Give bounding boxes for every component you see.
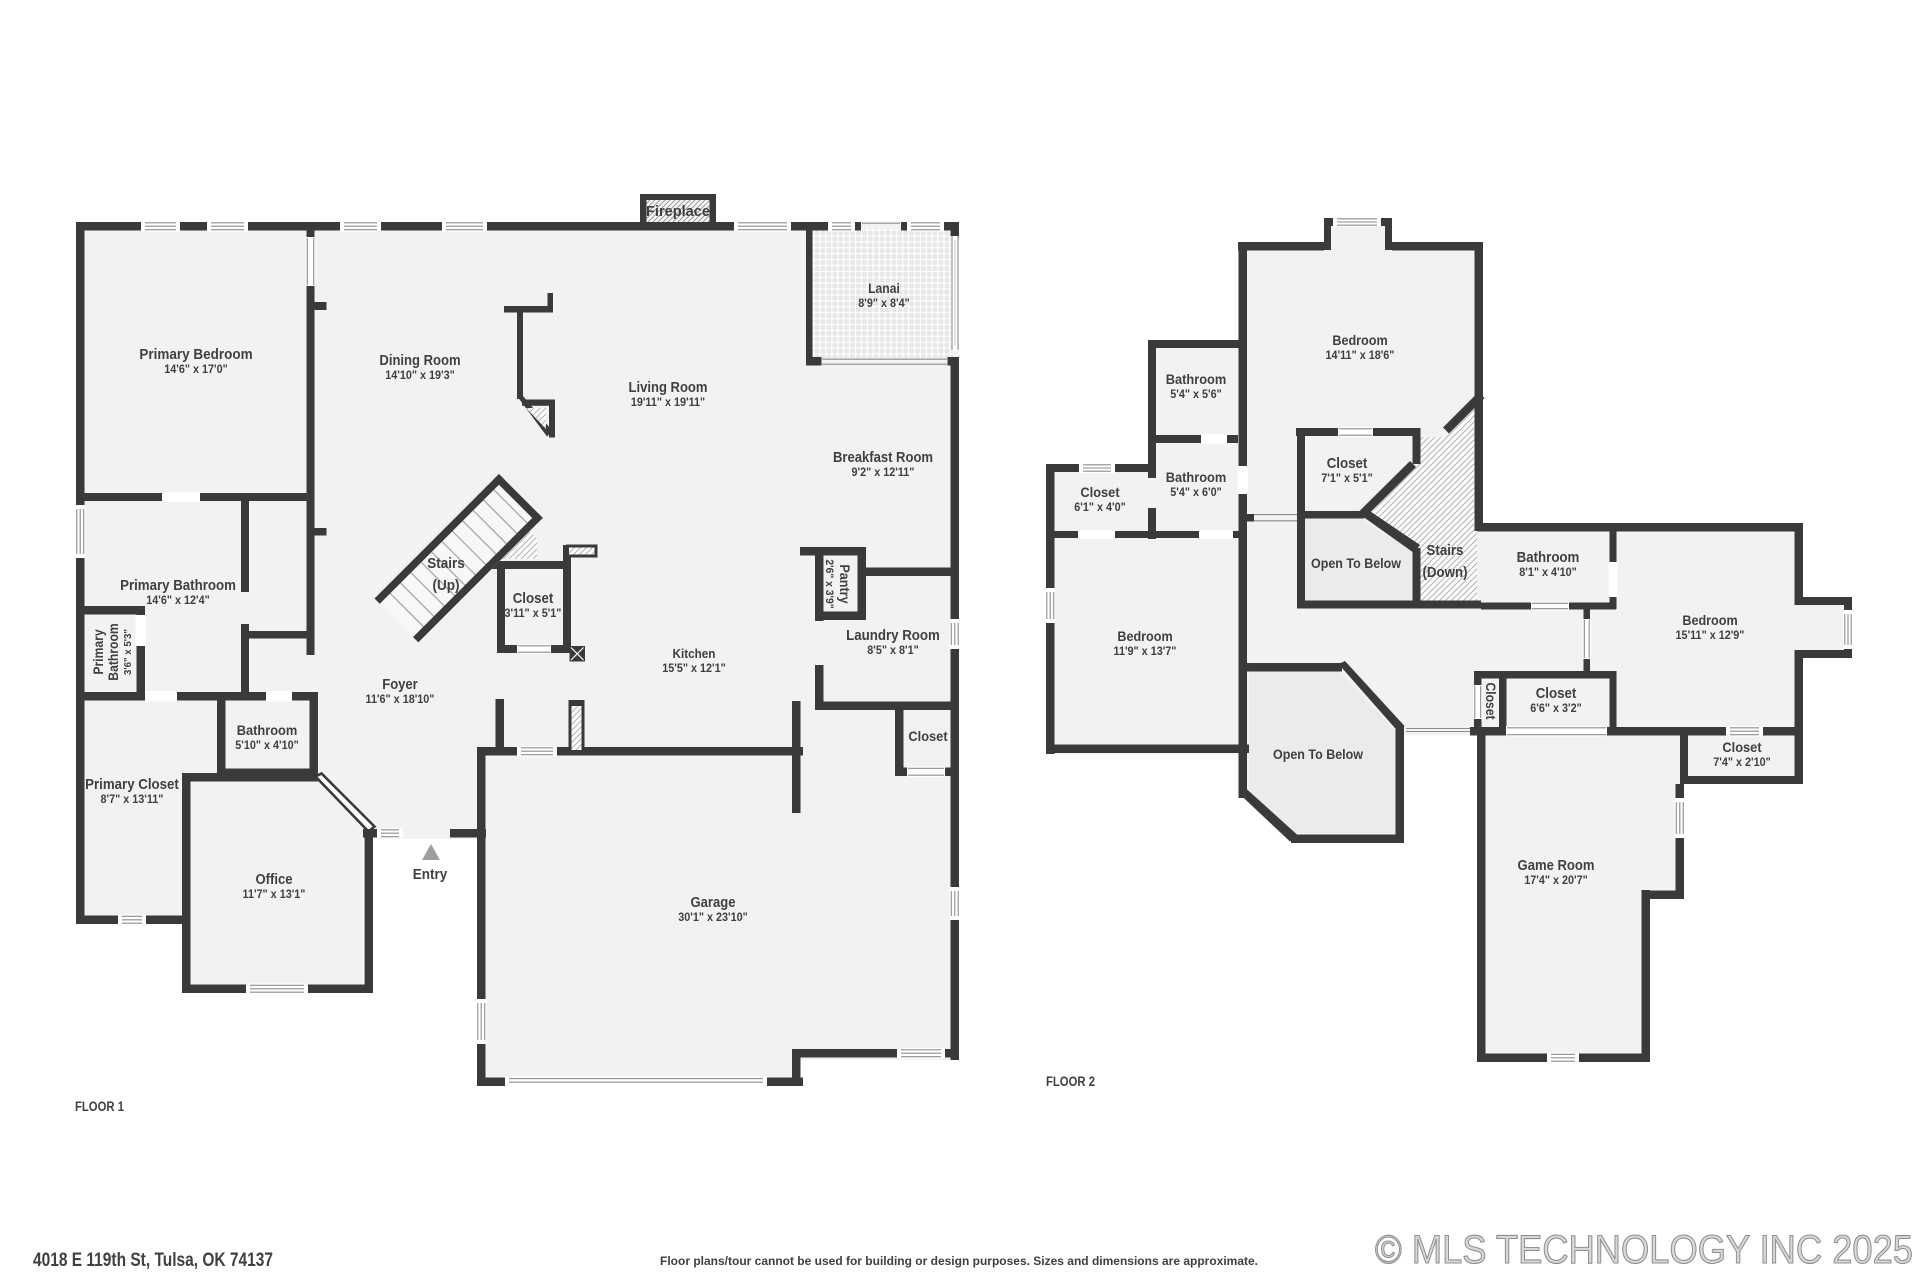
svg-text:11'6" x 18'10": 11'6" x 18'10" [366, 692, 435, 706]
svg-text:Office: Office [256, 872, 293, 888]
svg-text:15'5" x 12'1": 15'5" x 12'1" [662, 661, 726, 675]
svg-text:5'4" x 6'0": 5'4" x 6'0" [1170, 485, 1222, 499]
svg-text:9'2" x 12'11": 9'2" x 12'11" [852, 465, 915, 479]
svg-text:(Up): (Up) [433, 577, 460, 594]
svg-text:FLOOR 2: FLOOR 2 [1046, 1074, 1095, 1089]
svg-text:Foyer: Foyer [382, 677, 418, 693]
svg-text:3'11" x 5'1": 3'11" x 5'1" [505, 606, 562, 620]
svg-text:Closet: Closet [908, 729, 947, 745]
svg-text:8'1" x 4'10": 8'1" x 4'10" [1519, 565, 1577, 579]
svg-text:Fireplace: Fireplace [646, 204, 710, 220]
svg-text:Closet: Closet [1483, 682, 1498, 720]
svg-text:Entry: Entry [413, 866, 448, 883]
svg-text:14'6" x 17'0": 14'6" x 17'0" [164, 362, 228, 376]
svg-text:8'7" x 13'11": 8'7" x 13'11" [101, 792, 164, 806]
svg-text:Garage: Garage [691, 895, 736, 911]
svg-text:Living Room: Living Room [629, 380, 708, 396]
svg-text:5'4" x 5'6": 5'4" x 5'6" [1170, 387, 1222, 401]
svg-text:30'1" x 23'10": 30'1" x 23'10" [678, 910, 748, 924]
svg-text:14'10" x 19'3": 14'10" x 19'3" [385, 368, 455, 382]
svg-text:14'6" x 12'4": 14'6" x 12'4" [146, 593, 210, 607]
svg-text:Primary: Primary [91, 629, 106, 675]
svg-text:Stairs: Stairs [1427, 543, 1464, 559]
svg-text:Primary Bedroom: Primary Bedroom [139, 346, 252, 363]
svg-text:11'7" x 13'1": 11'7" x 13'1" [243, 887, 306, 901]
svg-text:Open To Below: Open To Below [1273, 747, 1363, 762]
svg-text:Stairs: Stairs [427, 555, 465, 572]
svg-text:6'6" x 3'2": 6'6" x 3'2" [1530, 701, 1582, 715]
svg-text:Bathroom: Bathroom [106, 623, 121, 680]
svg-text:© MLS TECHNOLOGY INC 2025: © MLS TECHNOLOGY INC 2025 [1375, 1228, 1913, 1272]
svg-text:Laundry Room: Laundry Room [846, 628, 940, 644]
svg-text:8'5" x 8'1": 8'5" x 8'1" [867, 643, 919, 657]
svg-text:Bathroom: Bathroom [1166, 372, 1227, 388]
svg-text:7'4" x 2'10": 7'4" x 2'10" [1713, 755, 1771, 769]
svg-text:4018 E 119th St, Tulsa, OK 741: 4018 E 119th St, Tulsa, OK 74137 [33, 1250, 273, 1271]
svg-text:3'6" x 5'3": 3'6" x 5'3" [122, 629, 134, 675]
svg-text:8'9" x 8'4": 8'9" x 8'4" [858, 296, 910, 310]
svg-text:Dining Room: Dining Room [379, 353, 460, 369]
svg-text:Closet: Closet [1536, 686, 1577, 702]
svg-text:Pantry: Pantry [837, 564, 853, 603]
svg-text:Bathroom: Bathroom [1166, 470, 1227, 486]
svg-text:Bathroom: Bathroom [237, 723, 298, 739]
svg-text:Bathroom: Bathroom [1517, 550, 1580, 566]
svg-text:6'1" x 4'0": 6'1" x 4'0" [1074, 500, 1126, 514]
svg-text:19'11" x 19'11": 19'11" x 19'11" [631, 395, 705, 409]
svg-text:Kitchen: Kitchen [673, 646, 716, 661]
svg-text:FLOOR 1: FLOOR 1 [75, 1099, 124, 1114]
svg-text:2'6" x 3'9": 2'6" x 3'9" [823, 559, 835, 608]
svg-text:Closet: Closet [1327, 456, 1368, 472]
svg-text:Primary Bathroom: Primary Bathroom [120, 578, 236, 594]
svg-text:Primary Closet: Primary Closet [85, 777, 179, 793]
svg-text:5'10" x 4'10": 5'10" x 4'10" [235, 738, 299, 752]
svg-text:7'1" x 5'1": 7'1" x 5'1" [1321, 471, 1373, 485]
svg-text:17'4" x 20'7": 17'4" x 20'7" [1524, 873, 1588, 887]
svg-text:Bedroom: Bedroom [1682, 612, 1737, 628]
svg-text:Floor plans/tour cannot be use: Floor plans/tour cannot be used for buil… [660, 1254, 1258, 1268]
svg-text:(Down): (Down) [1423, 565, 1468, 581]
svg-text:Bedroom: Bedroom [1332, 332, 1387, 348]
svg-text:11'9" x 13'7": 11'9" x 13'7" [1114, 644, 1177, 658]
svg-text:Bedroom: Bedroom [1117, 628, 1172, 644]
svg-text:Lanai: Lanai [868, 281, 900, 296]
svg-text:14'11" x 18'6": 14'11" x 18'6" [1326, 348, 1395, 362]
svg-text:Open To Below: Open To Below [1311, 556, 1401, 571]
svg-text:15'11" x 12'9": 15'11" x 12'9" [1676, 628, 1745, 642]
svg-text:Breakfast Room: Breakfast Room [833, 450, 933, 466]
svg-text:Game Room: Game Room [1518, 858, 1595, 874]
svg-text:Closet: Closet [1080, 485, 1119, 501]
svg-text:Closet: Closet [513, 591, 554, 607]
svg-text:Closet: Closet [1722, 740, 1761, 756]
